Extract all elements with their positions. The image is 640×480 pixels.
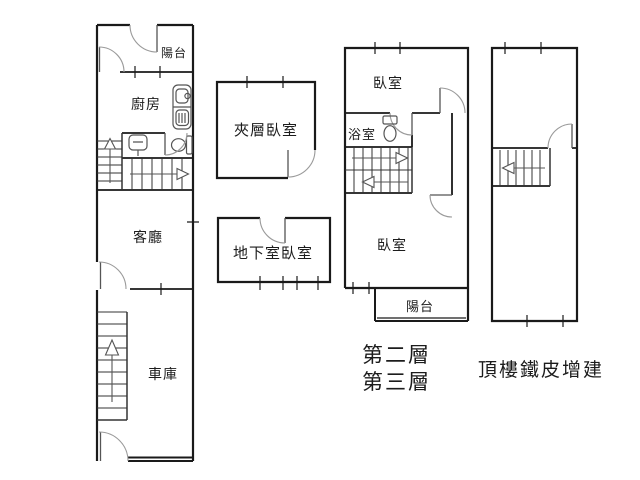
basement-door (260, 218, 285, 243)
window-tick-mark (505, 42, 563, 327)
door-swing-arc (165, 133, 187, 155)
door-swing-arc (548, 124, 572, 148)
living-room-door (99, 262, 126, 289)
mezzanine-plan: 夾層臥室 (217, 76, 315, 178)
door-swing-arc (288, 150, 315, 177)
stair-direction-arrow-left (363, 177, 409, 188)
bathroom-door (165, 133, 187, 155)
caption-floor-2: 第二層 (362, 344, 431, 367)
floor-plan-page: 陽台 廚房 客廳 車庫 夾層臥室 地下室臥室 (0, 0, 640, 480)
door-swing-arc (130, 25, 157, 52)
upper-bedroom-door (440, 88, 465, 113)
garage-entry-door (99, 432, 128, 461)
mezzanine-door (288, 150, 315, 177)
toilet-icon (172, 136, 193, 154)
kitchen-door (99, 47, 124, 72)
stair-direction-arrow-right (130, 169, 189, 180)
room-label-balcony: 陽台 (406, 299, 434, 314)
rooftop-plan: 頂樓鐵皮增建 (478, 42, 604, 381)
floor-plan-figure: 陽台 廚房 客廳 車庫 夾層臥室 地下室臥室 (0, 0, 640, 480)
washbasin-icon (129, 135, 147, 156)
basement-plan: 地下室臥室 (218, 218, 330, 290)
balcony-door (130, 25, 157, 52)
toilet-icon (383, 116, 397, 141)
second-third-floor-plan: 臥室 浴室 臥室 陽台 第二層 第三層 (345, 42, 468, 394)
wall (492, 48, 577, 321)
door-swing-arc (99, 432, 128, 461)
room-label-living-room: 客廳 (133, 229, 163, 245)
door-swing-arc (99, 47, 124, 72)
caption-floor-3: 第三層 (362, 371, 431, 394)
garage-door-sill (128, 458, 193, 462)
first-floor-plan: 陽台 廚房 客廳 車庫 (97, 25, 199, 461)
room-label-kitchen: 廚房 (131, 96, 161, 112)
stairs-floor23 (345, 147, 412, 193)
room-label-mezzanine-bedroom: 夾層臥室 (234, 122, 298, 139)
stair-direction-arrow-up (105, 139, 116, 184)
door-swing-arc (440, 88, 465, 113)
door-swing-arc (99, 262, 126, 289)
stair-direction-arrow-up (106, 340, 119, 402)
room-label-garage: 車庫 (148, 366, 178, 382)
room-label-bathroom: 浴室 (348, 127, 376, 142)
room-label-bedroom-upper: 臥室 (373, 75, 403, 91)
lower-bedroom-door (430, 195, 452, 217)
room-label-basement-bedroom: 地下室臥室 (233, 245, 313, 262)
rooftop-room-door (548, 124, 572, 148)
door-swing-arc (260, 218, 285, 243)
kitchen-sink-stove-icon (173, 85, 191, 129)
room-label-balcony: 陽台 (161, 45, 187, 60)
door-swing-arc (430, 195, 452, 217)
room-label-bedroom-lower: 臥室 (377, 237, 407, 253)
caption-rooftop: 頂樓鐵皮增建 (478, 359, 604, 381)
stair-direction-arrow-right (352, 153, 408, 164)
